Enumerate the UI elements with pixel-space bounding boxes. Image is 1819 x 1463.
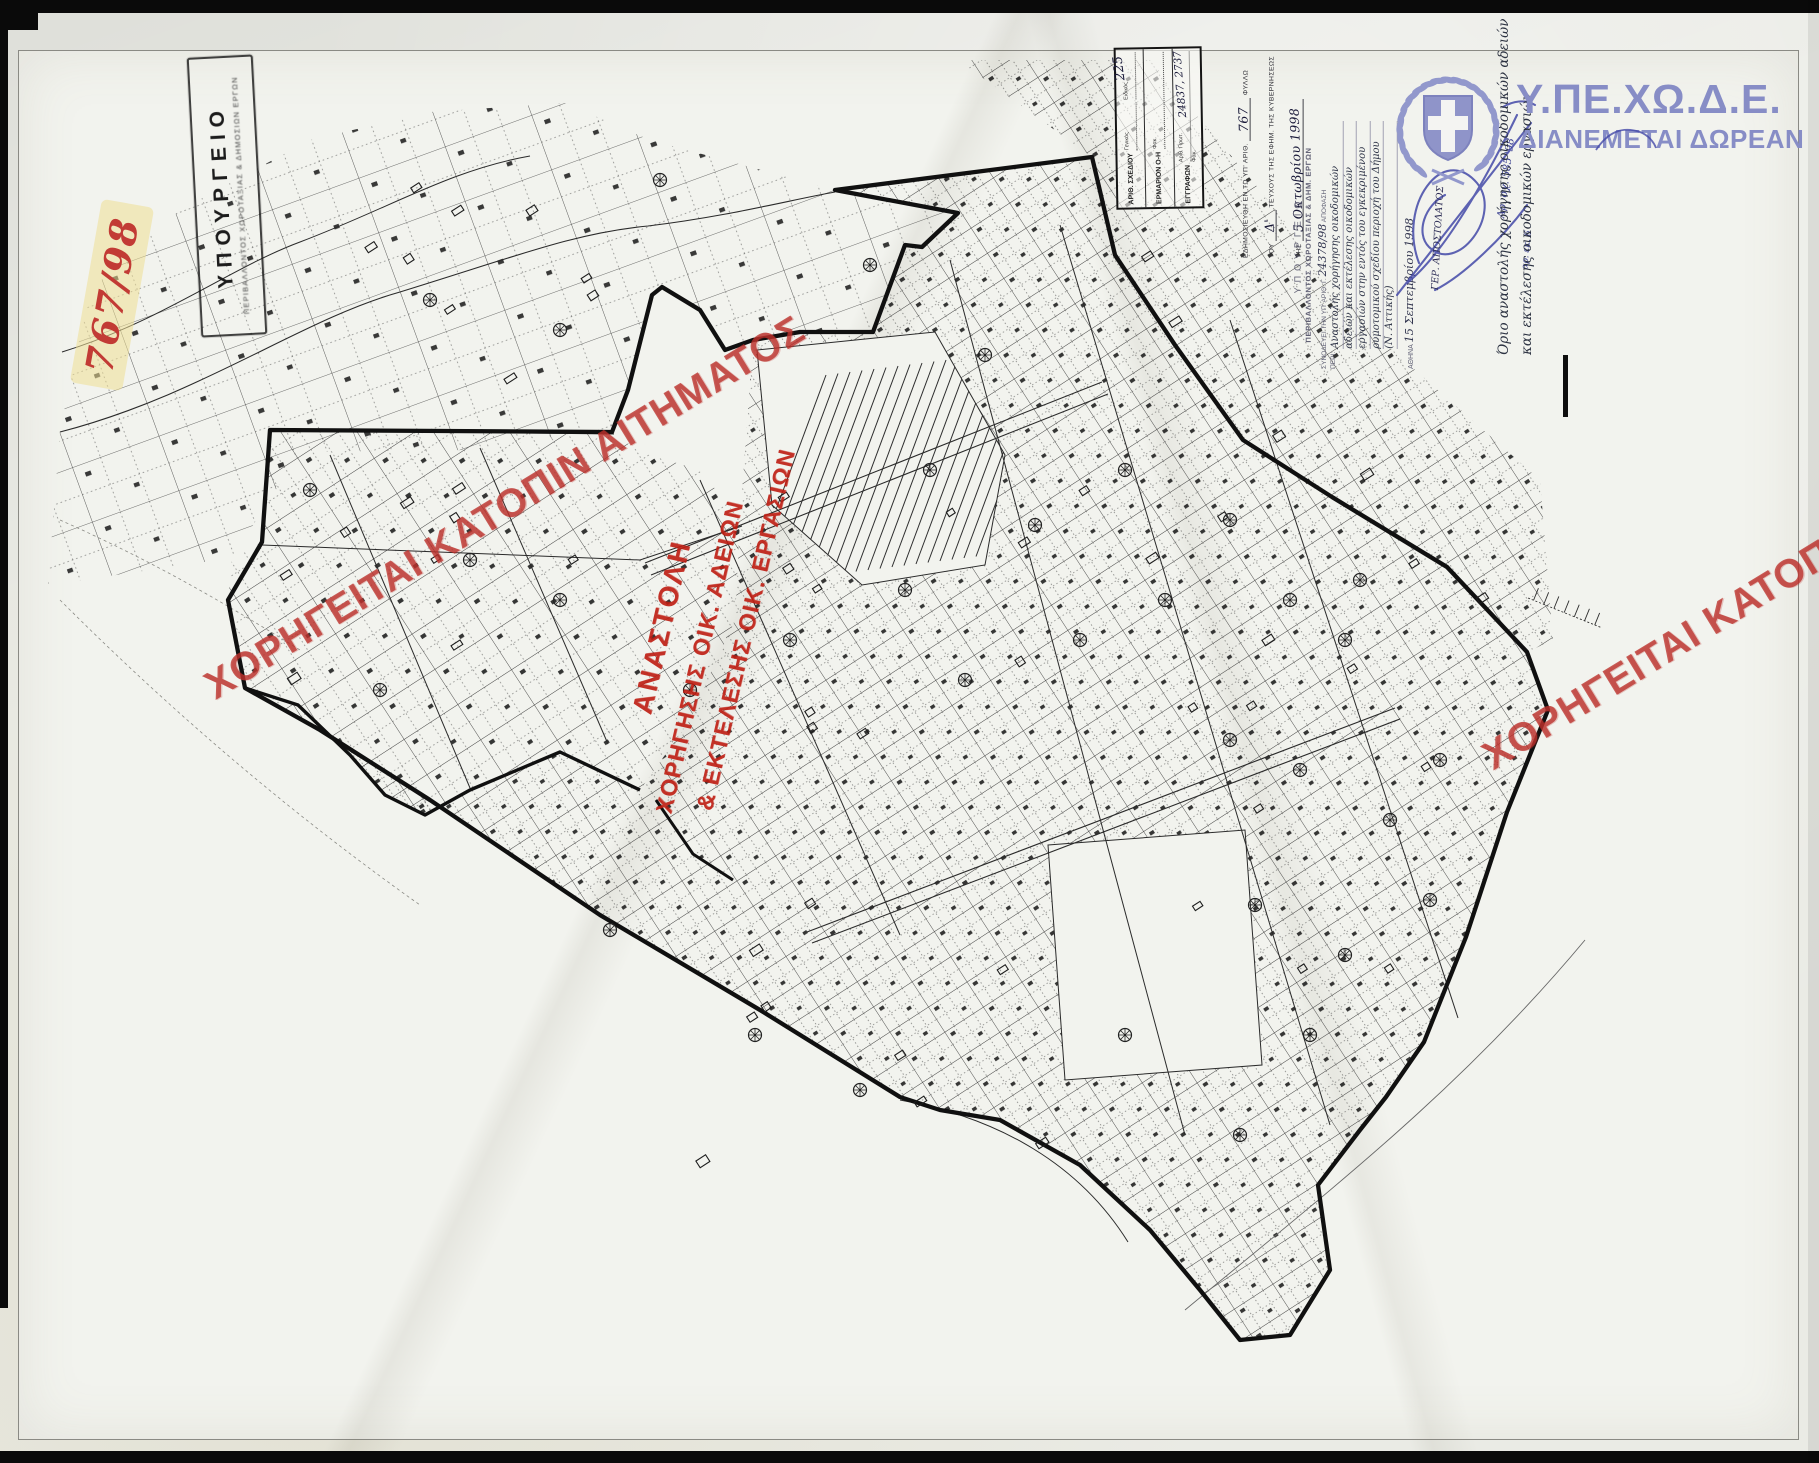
- gazette-l2b: ΤΕΥΧΟΥΣ ΤΗΣ ΕΦΗΜ. ΤΗΣ ΚΥΒΕΡΝΗΣΕΩΣ: [1269, 56, 1276, 208]
- decision-peri-line3: εργασιών στην εντός του εγκεκριμένου: [1357, 121, 1371, 349]
- decision-stamp-subtitle: ΠΕΡΙΒΑΛΛΟΝΤΟΣ ΧΩΡΟΤΑΞΙΑΣ & ΔΗΜ. ΕΡΓΩΝ: [1304, 121, 1313, 369]
- decision-peri-line2: αδειών και εκτέλεσης οικοδομικών: [1343, 121, 1357, 349]
- gazette-l2a: ΤΟΥ: [1269, 243, 1276, 258]
- filing-row-cabinet: ΕΡΜΑΡΙΟΝ Ο-Η Φακ.: [1144, 49, 1175, 207]
- scan-edge-top: [0, 0, 1819, 13]
- greek-coat-of-arms-logo: [1388, 52, 1508, 204]
- filing-sub-protocol: Αριθ. Πρωτ.: [1178, 133, 1185, 162]
- scanned-map-sheet: 767/98 ΥΠΟΥΡΓΕΙΟ ΠΕΡΙΒΑΛΛΟΝΤΟΣ ΧΩΡΟΤΑΞΙΑ…: [0, 0, 1819, 1463]
- filing-label: ΑΡΙΘ. ΣΧΕΔΙΟΥ: [1128, 153, 1136, 205]
- filing-box-stamp: ΑΡΙΘ. ΣΧΕΔΙΟΥ Γενικός Ειδικός 225 ΕΡΜΑΡΙ…: [1114, 46, 1205, 210]
- filing-row-documents: ΕΓΓΡΑΦΩΝ Αριθ. Πρωτ.Φακ. 24837, 2737: [1172, 48, 1202, 206]
- shield-cross-icon: [1424, 96, 1472, 160]
- decision-stamp-title: ΥΠΟΥΡΓΕΙΟ: [1293, 121, 1303, 369]
- gazette-issue-number: 767: [1230, 106, 1257, 132]
- boundary-line-sample: [1563, 355, 1568, 417]
- scan-edge-left: [0, 0, 8, 1308]
- pen-checkmark: [1592, 122, 1662, 162]
- decision-peri-line4: ρυμοτομικού σχεδίου περιοχή του Δήμου: [1370, 121, 1384, 349]
- decision-ref-a: ΣΥΝΟΔΕΥΕΙ ΤΗΝ ΥΠ' ΑΡΙΘ. Γ.: [1321, 278, 1328, 369]
- filing-value-225: 225: [1110, 55, 1128, 81]
- decision-peri-label: ΠΕΡΙ:: [1330, 352, 1398, 369]
- scan-edge-corner: [0, 0, 38, 30]
- gazette-volume: Δ': [1257, 218, 1284, 232]
- decision-peri-line1: Αναστολής χορήγησης οικοδομικών: [1330, 121, 1344, 349]
- gazette-l1a: ΕΔΗΜΟΣΙΕΥΘΗ ΕΝ ΤΩ ΥΠ' ΑΡΙΘ.: [1243, 143, 1250, 258]
- filing-row-plan-number: ΑΡΙΘ. ΣΧΕΔΙΟΥ Γενικός Ειδικός 225: [1116, 49, 1147, 207]
- filing-label-documents: ΕΓΓΡΑΦΩΝ: [1184, 165, 1192, 204]
- decision-place: ΑΘΗΝΑ: [1407, 345, 1414, 369]
- filing-label-cabinet: ΕΡΜΑΡΙΟΝ Ο-Η: [1156, 152, 1164, 204]
- filing-sub-general: Γενικός: [1124, 132, 1130, 150]
- agency-acronym: Υ.ΠΕ.ΧΩ.Δ.Ε.: [1516, 76, 1782, 123]
- decision-ref-b: ΑΠΟΦΑΣΗ: [1321, 190, 1328, 223]
- gazette-l1b: ΦΥΛΛΩ: [1243, 70, 1250, 95]
- filing-sub-fak2: Φακ.: [1191, 150, 1197, 162]
- scan-edge-right: [1808, 0, 1819, 1463]
- filing-sub-fak: Φακ.: [1153, 137, 1159, 149]
- decision-ref-number: 24378/98: [1316, 224, 1329, 277]
- wreath-stems: [1432, 170, 1464, 184]
- filing-sub-special: Ειδικός: [1123, 82, 1129, 100]
- scan-edge-bottom: [0, 1451, 1819, 1463]
